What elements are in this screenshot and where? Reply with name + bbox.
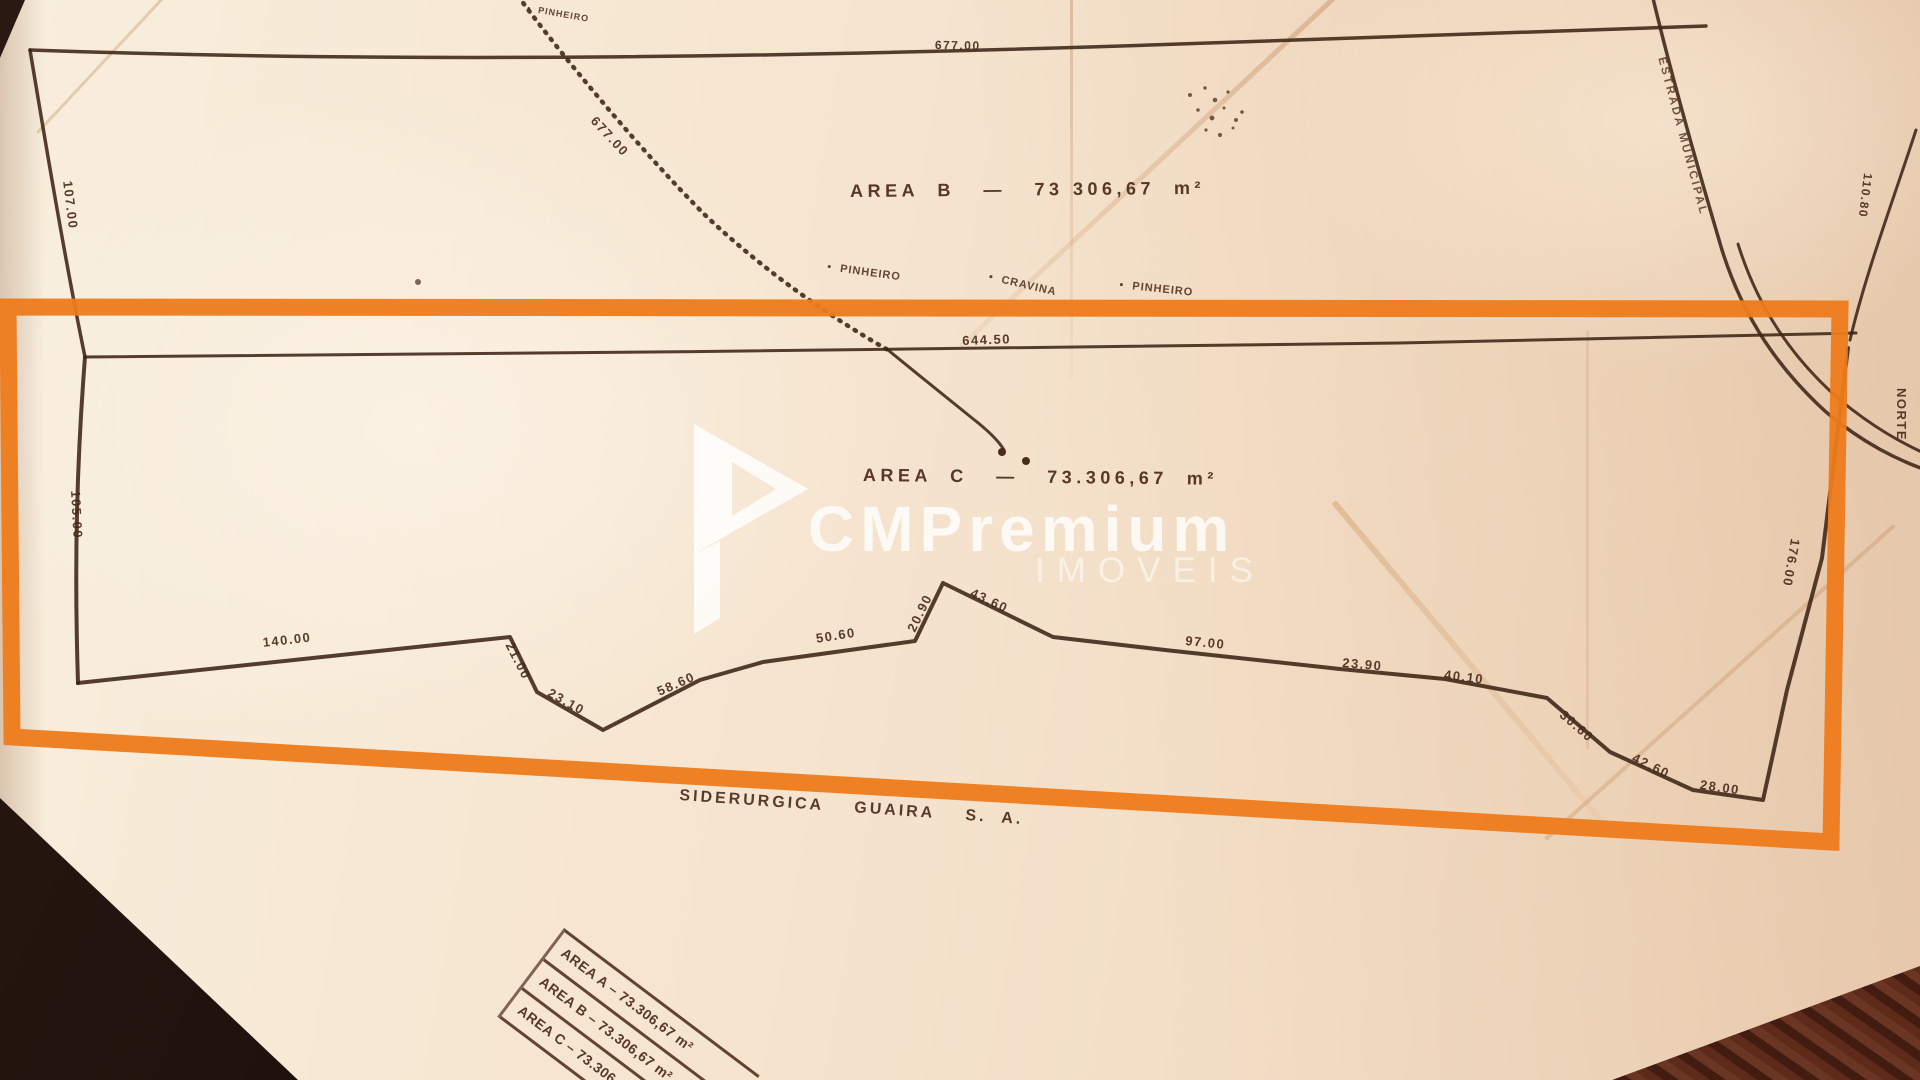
measurement-label: 677.00	[935, 39, 981, 52]
measurement-label: 644.50	[962, 332, 1011, 347]
fold-crease	[36, 0, 168, 134]
measurement-label: 58.60	[655, 670, 697, 698]
company-label: SIDERURGICA GUAIRA S. A.	[679, 788, 1024, 828]
measurement-label: 21.00	[503, 640, 533, 682]
tree-label: • PINHEIRO	[526, 4, 589, 24]
photo-background: AREA B — 73 306,67 m² AREA C — 73.306,67…	[0, 0, 1920, 1080]
area-c-label: AREA C — 73.306,67 m²	[863, 466, 1218, 488]
measurement-label: 677.00	[588, 114, 631, 159]
measurement-label: 23.10	[546, 686, 587, 717]
creek-line	[888, 350, 1004, 450]
measurement-label: 176.00	[1781, 538, 1802, 588]
area-divider-dotted-line	[518, 0, 888, 350]
northeast-boundary-line	[1850, 130, 1916, 340]
highlight-rectangle-outline	[8, 307, 1840, 842]
measurement-label: 42.60	[1630, 751, 1672, 780]
road-label: ESTRADA MUNICIPAL	[1655, 56, 1709, 217]
tree-label: • PINHEIRO	[1119, 280, 1194, 299]
measurement-label: 30.60	[1557, 708, 1596, 744]
watermark-subtitle: IMOVEIS	[1035, 551, 1265, 591]
measurement-label: 97.00	[1185, 634, 1226, 651]
fold-crease	[1586, 330, 1589, 750]
survey-map-paper: AREA B — 73 306,67 m² AREA C — 73.306,67…	[0, 0, 1920, 1080]
fold-crease	[958, 0, 1342, 349]
area-b-label: AREA B — 73 306,67 m²	[850, 179, 1205, 200]
legend-table: AREA A – 73.306,67 m² AREA B – 73.306,67…	[497, 928, 759, 1080]
measurement-label: 28.00	[1699, 778, 1740, 796]
tree-label: • CRAVINA	[988, 272, 1058, 298]
measurement-label: 105.00	[69, 490, 85, 539]
measurement-label: 43.60	[969, 586, 1011, 615]
speckle-cluster	[1188, 86, 1244, 137]
road-outer-line	[1652, 0, 1920, 470]
edge-label: NORTE	[1895, 388, 1908, 441]
measurement-label: 110.80	[1857, 173, 1874, 219]
measurement-label: 107.00	[61, 180, 80, 230]
road-inner-line	[1738, 244, 1920, 454]
measurement-label: 40.10	[1443, 668, 1484, 686]
map-dots	[415, 86, 1244, 465]
measurement-label: 23.90	[1342, 656, 1383, 672]
measurement-label: 50.60	[815, 626, 857, 645]
measurement-label: 140.00	[262, 630, 312, 648]
tree-label: • PINHEIRO	[826, 262, 901, 283]
north-boundary-line	[30, 26, 1706, 57]
measurement-label: 20.90	[905, 592, 934, 634]
